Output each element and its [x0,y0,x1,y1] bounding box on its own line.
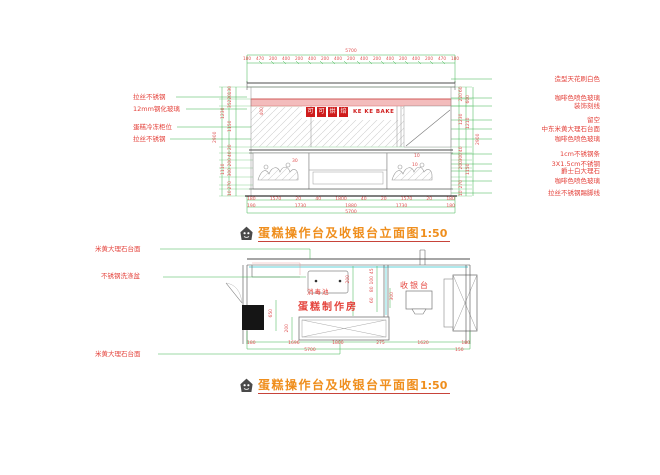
elevation-total-dim: 5700 [247,50,455,55]
dim-value: 20 [295,198,301,203]
logo-icon [239,226,254,241]
plan-cashier-label: 收银台 [400,282,430,290]
inner-dim-10a: 10 [414,155,420,160]
label-marble-top-1: 米黄大理石台面 [95,246,141,253]
right-leader-lines [451,79,492,193]
cash-register [406,291,432,309]
inner-dim-10b: 10 [412,164,418,169]
dim-value: 400 [412,57,420,61]
label-steel-sink: 不锈钢洗涤盆 [101,273,140,280]
elevation-top-dims: 1804702004002004002004002004002004002004… [243,57,459,61]
middle-shelf-band [313,172,383,184]
elevation-title-underline [258,241,450,242]
elevation-bottom-dims-1: 1801570204018004020157020180 [247,198,455,203]
label-leave-empty: 留空 [492,117,600,124]
dim-value: 1800 [335,198,346,203]
shop-sign: 可可烘焙 KE KE BAKE [306,107,394,117]
label-steel-strip: 1cm不锈钢条 [492,151,600,158]
dim-value: 400 [282,57,290,61]
right-total-dim: 2900 [477,126,482,152]
plan-title: 蛋糕操作台及收银台平面图 [258,379,420,391]
label-coffee-glass-2: 咖啡色喷色玻璃 [492,136,600,143]
dim-value: 470 [438,57,446,61]
plan-title-underline [258,393,450,394]
sink-drain [315,280,318,283]
plan-portal [420,250,425,265]
dim-value: 400 [308,57,316,61]
sign-latin-text: KE KE BAKE [353,109,394,115]
dim-value: 400 [386,57,394,61]
dim-value: 200 [321,57,329,61]
label-coffee-glass-1: 咖啡色喷色玻璃 [492,95,600,102]
dim-value: 1730 [295,205,306,210]
dim-value: 200 [399,57,407,61]
label-jazz-white-marble: 爵士白大理石 [492,168,600,175]
dim-value: 1570 [270,198,281,203]
sign-char-block: 焙 [339,107,348,117]
dim-value: 1696 [288,342,299,347]
leave-empty-panel [404,106,451,147]
plan-room-label: 蛋糕制作房 [298,303,358,313]
inner-dim-400: 400 [261,98,266,124]
right-dim: 1150 [467,156,472,182]
dim-value: 180 [243,57,251,61]
label-ceiling-white: 造型天花刷白色 [492,76,600,83]
plan-mid-dim: 60 [371,287,376,313]
signage-band [251,99,451,106]
dim-value: 180 [247,342,256,347]
plan-bottom-total: 5700 [250,349,370,354]
label-coffee-glass-3: 咖啡色喷色玻璃 [492,178,600,185]
dim-value: 180 [446,198,455,203]
dim-value: 200 [295,57,303,61]
dim-value: 1800 [332,342,343,347]
dim-value: 180 [451,57,459,61]
cash-register-stand [412,309,426,314]
plan-dim-200: 200 [347,266,352,292]
dim-value: 1730 [396,205,407,210]
plan-scale: 1:50 [420,380,447,391]
dim-value: 400 [360,57,368,61]
dim-value: 20 [426,198,432,203]
label-marble-top-2: 米黄大理石台面 [95,351,141,358]
elevation-scale: 1:50 [420,228,447,239]
dim-value: 1620 [417,342,428,347]
label-cake-freezer: 蛋糕冷冻柜位 [133,124,172,131]
left-leader-lines [170,97,251,139]
right-dim: 1210 [467,110,472,136]
left-dim: 1230 [222,100,227,126]
label-brushed-steel-1: 拉丝不锈钢 [133,94,166,101]
dim-value: 40 [315,198,321,203]
top-dim-ticks [259,61,445,64]
cad-drawing-canvas: 5700 18047020040020040020040020040020040… [0,0,660,475]
plan-sanitize-label: 消毒池 [307,289,330,296]
label-steel-skirting: 拉丝不锈钢踢脚线 [492,190,600,197]
dim-value: 40 [361,198,367,203]
sign-char-block: 可 [306,107,315,117]
plan-dim-650: 650 [270,300,275,326]
dim-value: 200 [373,57,381,61]
dim-value: 470 [256,57,264,61]
label-tempered-glass: 12mm钢化玻璃 [133,106,180,113]
left-dim: 10 [229,180,234,206]
plan-column [242,305,264,330]
sign-char-block: 可 [317,107,326,117]
label-brushed-steel-2: 拉丝不锈钢 [133,136,166,143]
right-dim: 10 [460,180,465,206]
dim-value: 180 [247,198,256,203]
dim-value: 180 [446,205,455,210]
dim-value: 400 [334,57,342,61]
right-dim: 600 [467,86,472,112]
sign-characters: 可可烘焙 [306,107,348,117]
dim-value: 200 [269,57,277,61]
dim-value: 180 [461,342,470,347]
elevation-bottom-dims-2: 190173018801730180 [247,205,455,210]
dim-value: 1880 [345,205,356,210]
ceiling-line2 [247,81,455,90]
elevation-title: 蛋糕操作台及收银台立面图 [258,227,420,239]
elevation-bottom-total: 5700 [247,211,455,216]
inner-dim-30: 30 [292,160,298,165]
dim-value: 200 [347,57,355,61]
plan-bottom-right-dim: 150 [455,349,464,354]
right-cabinet-side [444,279,453,327]
plan-dim-300: 300 [391,283,396,309]
plan-bottom-dims: 180169618002751620180 [247,342,470,347]
dim-value: 1570 [401,198,412,203]
label-deco-lines: 装饰刻线 [492,103,600,110]
label-beige-marble-top: 中东米黄大理石台面 [492,126,600,133]
dim-value: 275 [376,342,385,347]
dim-value: 200 [425,57,433,61]
sign-char-block: 烘 [328,107,337,117]
right-dim: 1230 [460,106,465,132]
left-dim: 1110 [222,156,227,182]
sink-drain [339,280,342,283]
elevation-drawing [170,55,492,213]
dim-value: 20 [381,198,387,203]
plan-dim-200b: 200 [286,315,291,341]
logo-icon [239,378,254,393]
left-total-dim: 2900 [214,124,219,150]
dim-value: 190 [247,205,256,210]
